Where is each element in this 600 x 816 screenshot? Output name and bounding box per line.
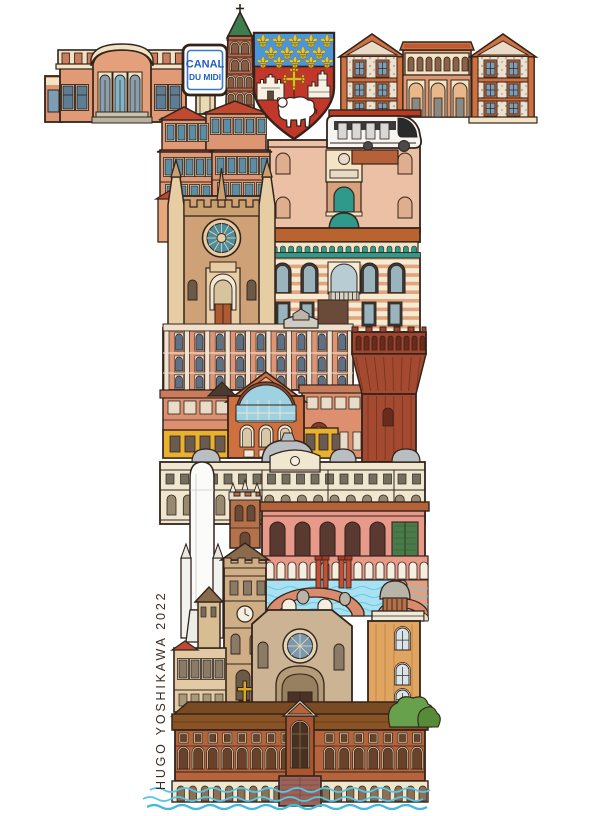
svg-text:DU MIDI: DU MIDI [189, 72, 221, 82]
svg-text:HUGO YOSHIKAWA 2022: HUGO YOSHIKAWA 2022 [154, 591, 168, 790]
svg-text:CANAL: CANAL [186, 59, 225, 71]
